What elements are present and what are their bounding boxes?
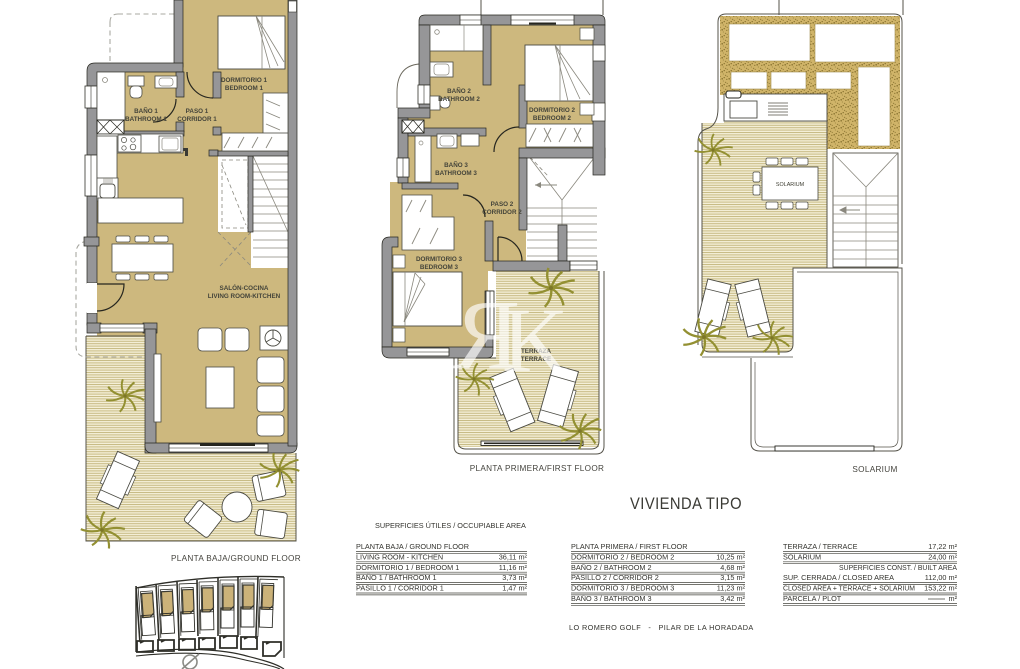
svg-text:10,25 m²: 10,25 m² [716,552,745,561]
svg-text:CLOSED AREA + TERRACE + SOLARI: CLOSED AREA + TERRACE + SOLARIUM [783,584,915,593]
svg-text:DORMITORIO 2 / BEDROOM 2: DORMITORIO 2 / BEDROOM 2 [571,552,674,561]
svg-text:VIVIENDA TIPO: VIVIENDA TIPO [630,495,742,513]
svg-text:CORRIDOR 1: CORRIDOR 1 [177,116,217,123]
svg-text:24,00 m²: 24,00 m² [928,552,957,561]
svg-text:PASO 2: PASO 2 [491,201,514,208]
svg-text:LO ROMERO GOLF - PILAR DE: LO ROMERO GOLF - PILAR DE LA HORADADA [569,623,754,632]
svg-text:11,16 m²: 11,16 m² [499,563,528,572]
svg-text:PLANTA BAJA / GROUND FLOOR: PLANTA BAJA / GROUND FLOOR [356,542,469,551]
svg-text:DORMITORIO 3: DORMITORIO 3 [416,256,463,263]
svg-text:SALÓN-COCINA: SALÓN-COCINA [220,283,269,292]
svg-text:SUPERFICIES ÚTILES / OCCUPIABL: SUPERFICIES ÚTILES / OCCUPIABLE AREA [375,521,526,530]
svg-text:BATHROOM 1: BATHROOM 1 [125,116,167,123]
svg-text:m²: m² [948,594,957,603]
svg-text:DORMITORIO 2: DORMITORIO 2 [529,107,576,114]
svg-text:SUP. CERRADA / CLOSED AREA: SUP. CERRADA / CLOSED AREA [783,573,894,582]
svg-text:BAÑO 2: BAÑO 2 [447,86,471,95]
svg-text:SOLARIUM: SOLARIUM [783,552,821,561]
svg-text:CORRIDOR 2: CORRIDOR 2 [482,209,522,216]
svg-text:BEDROOM 3: BEDROOM 3 [420,264,459,271]
svg-text:PARCELA / PLOT: PARCELA / PLOT [783,594,842,603]
svg-text:SOLARIUM: SOLARIUM [776,182,805,188]
svg-text:BAÑO 2 / BATHROOM 2: BAÑO 2 / BATHROOM 2 [571,563,652,572]
svg-text:BAÑO 1: BAÑO 1 [134,106,158,115]
svg-text:11,23 m²: 11,23 m² [717,584,746,593]
svg-text:BAÑO 1 / BATHROOM 1: BAÑO 1 / BATHROOM 1 [356,573,437,582]
svg-text:112,00 m²: 112,00 m² [925,573,958,582]
svg-text:4,68 m²: 4,68 m² [720,563,745,572]
svg-text:PLANTA PRIMERA / FIRST FLOOR: PLANTA PRIMERA / FIRST FLOOR [571,542,688,551]
svg-text:DORMITORIO 1 / BEDROOM 1: DORMITORIO 1 / BEDROOM 1 [356,563,459,572]
svg-text:LIVING ROOM - KITCHEN: LIVING ROOM - KITCHEN [356,552,443,561]
svg-text:LIVING ROOM-KITCHEN: LIVING ROOM-KITCHEN [208,293,281,300]
svg-text:PASILLO 2 / CORRIDOR 2: PASILLO 2 / CORRIDOR 2 [571,573,659,582]
svg-text:3,73 m²: 3,73 m² [502,573,527,582]
svg-text:BATHROOM 3: BATHROOM 3 [435,170,477,177]
svg-text:K: K [502,289,568,391]
svg-text:PLANTA PRIMERA/FIRST FLOOR: PLANTA PRIMERA/FIRST FLOOR [470,464,604,473]
svg-text:PLANTA BAJA/GROUND FLOOR: PLANTA BAJA/GROUND FLOOR [171,554,301,563]
svg-text:36,11 m²: 36,11 m² [499,552,528,561]
svg-text:SUPERFICIES CONST. / BUILT AR: SUPERFICIES CONST. / BUILT AREA [839,563,957,572]
svg-text:3,42 m²: 3,42 m² [720,594,745,603]
svg-text:DORMITORIO 3 / BEDROOM 3: DORMITORIO 3 / BEDROOM 3 [571,584,674,593]
svg-text:153,22 m²: 153,22 m² [924,584,957,593]
svg-text:SOLARIUM: SOLARIUM [852,465,897,474]
svg-text:BATHROOM 2: BATHROOM 2 [438,96,480,103]
svg-text:1,47 m²: 1,47 m² [502,584,527,593]
svg-text:PASILLO 1 / CORRIDOR 1: PASILLO 1 / CORRIDOR 1 [356,584,444,593]
svg-text:17,22 m²: 17,22 m² [928,542,957,551]
svg-text:BAÑO 3 / BATHROOM 3: BAÑO 3 / BATHROOM 3 [571,594,652,603]
svg-text:PASO 1: PASO 1 [186,108,209,115]
svg-text:BEDROOM 1: BEDROOM 1 [225,85,264,92]
svg-text:TERRAZA / TERRACE: TERRAZA / TERRACE [783,542,858,551]
svg-text:3,15 m²: 3,15 m² [720,573,745,582]
svg-text:BAÑO 3: BAÑO 3 [444,160,468,169]
svg-text:DORMITORIO 1: DORMITORIO 1 [221,77,268,84]
svg-text:BEDROOM 2: BEDROOM 2 [533,115,572,122]
